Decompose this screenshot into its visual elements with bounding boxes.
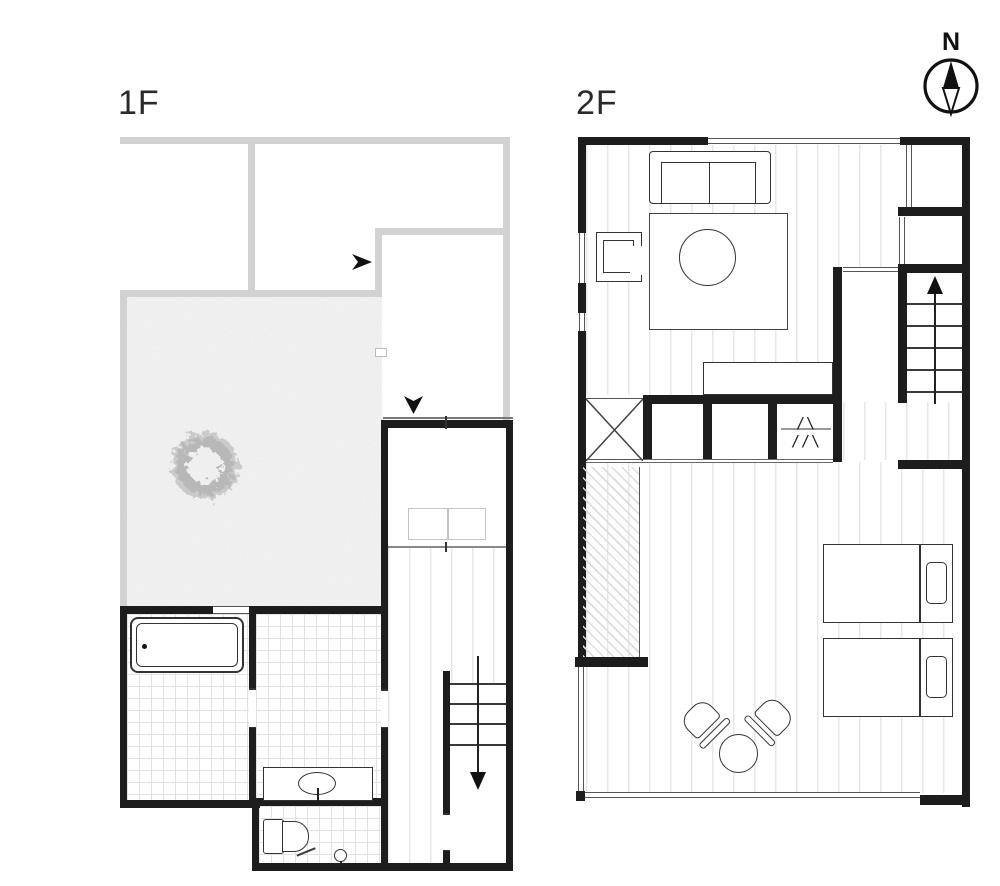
west-window-2 (579, 313, 585, 331)
stair-landing-upper (843, 267, 898, 395)
closet-divider-1 (643, 395, 652, 461)
bed-1-pillow (926, 562, 947, 604)
compass: N (920, 24, 982, 118)
west-window-low (578, 667, 584, 791)
stair-wall-2f (898, 273, 907, 403)
bathtub-drain (142, 644, 147, 649)
site-wall-notch-h (375, 228, 510, 235)
entry-arrow-right-icon (352, 254, 372, 270)
bed-2-head-line (919, 639, 921, 716)
site-wall-notch-v (375, 228, 382, 295)
gravel-texture (127, 297, 382, 608)
floor-drain-stem (340, 861, 342, 866)
sink-tap (317, 788, 319, 801)
stair-up-arrow-icon (927, 276, 943, 294)
south-window (585, 792, 920, 798)
stair-up-arrow-line (934, 282, 936, 404)
bathtub (130, 617, 244, 673)
landing-wall (833, 267, 842, 462)
north-wall-left (578, 137, 708, 145)
stair-door-jamb (443, 813, 450, 815)
closet-row-wall-top (643, 395, 833, 404)
courtyard (127, 297, 382, 608)
washroom-wall-top (250, 606, 388, 614)
living-table (679, 229, 736, 286)
entrance-lintel-line (383, 417, 513, 419)
bath-wash-divider-upper (249, 606, 256, 688)
stair-rail-line (843, 267, 898, 272)
bathtub-inner (136, 623, 238, 667)
compass-rose-icon: N (920, 24, 982, 118)
compass-north-letter: N (942, 28, 960, 56)
hallway-floor-lower (388, 683, 443, 863)
armchair (596, 232, 642, 282)
shoe-cabinet (408, 508, 486, 540)
entry-arrow-down-icon (404, 396, 423, 414)
west-window-1 (579, 233, 585, 283)
genkan-step-line (388, 546, 506, 548)
west-wall-2 (578, 283, 586, 313)
bed-2 (823, 638, 953, 717)
entrance-door-tick (445, 416, 447, 429)
floor2-label: 2F (576, 84, 618, 123)
bed-1 (823, 544, 953, 623)
closet1-wall-bottom (898, 207, 970, 216)
tv-board (703, 362, 833, 395)
site-wall-divider (248, 137, 255, 295)
hanger-marks: /\ //\ (779, 414, 833, 450)
stair-down-arrow-icon (470, 772, 486, 790)
hatch-wall-bottom (575, 657, 648, 667)
toilet-tank (263, 819, 284, 854)
bedroom-wall-top-right (898, 460, 962, 469)
entrance-wall (383, 420, 513, 428)
north-window (708, 138, 900, 144)
east-wall-2f (962, 137, 970, 807)
closet2-wall-bottom (898, 264, 970, 273)
bed-2-pillow (926, 656, 947, 698)
west-wall-1 (578, 137, 586, 233)
stair-wall-1f-end (443, 851, 450, 871)
washroom-door-jamb (381, 689, 388, 691)
genkan-step-tick (445, 542, 447, 552)
floor1-label: 1F (118, 84, 160, 123)
vanity (263, 767, 373, 801)
closet-divider-3 (768, 395, 777, 461)
sofa-seat-divider (709, 163, 711, 203)
armchair-opening (630, 246, 643, 275)
void-hatch-area (583, 467, 640, 657)
stair-wall-1f (443, 671, 450, 813)
bathroom-wall-left (120, 606, 127, 808)
courtyard-wall-left (120, 290, 127, 608)
stair-down-arrow-line (477, 656, 479, 776)
toilet-wall-left (252, 798, 259, 871)
hallway-floor-upper (388, 548, 506, 683)
courtyard-wall-top (120, 290, 382, 297)
closet1-wall (906, 145, 912, 207)
x-cross-icon (586, 399, 643, 461)
site-wall-right (503, 137, 510, 423)
north-wall-right (900, 137, 970, 145)
stair-landing-floor (843, 402, 962, 460)
bathroom-window (213, 606, 250, 614)
bed-1-head-line (919, 545, 921, 622)
south-wall (252, 863, 513, 871)
tea-table (719, 734, 758, 773)
east-wall (506, 420, 513, 871)
south-wall-right (920, 795, 970, 805)
bathroom-wall-top (120, 606, 213, 614)
closet2-wall (899, 217, 905, 264)
shaft-x-box (586, 398, 643, 460)
bath-wash-divider-lower (249, 728, 256, 800)
south-wall-corner-left (576, 791, 585, 801)
shoe-cabinet-divider (447, 509, 449, 539)
bath-door-jamb (249, 688, 256, 690)
west-wall-upper (381, 420, 388, 690)
bathroom-wall-bottom (120, 800, 260, 808)
sofa (649, 151, 771, 204)
floorplan-canvas: 1F (0, 0, 1000, 886)
sofa-seat (661, 162, 756, 203)
closet-divider-2 (703, 395, 712, 461)
step-stone (375, 348, 387, 357)
site-wall-top (120, 137, 510, 144)
